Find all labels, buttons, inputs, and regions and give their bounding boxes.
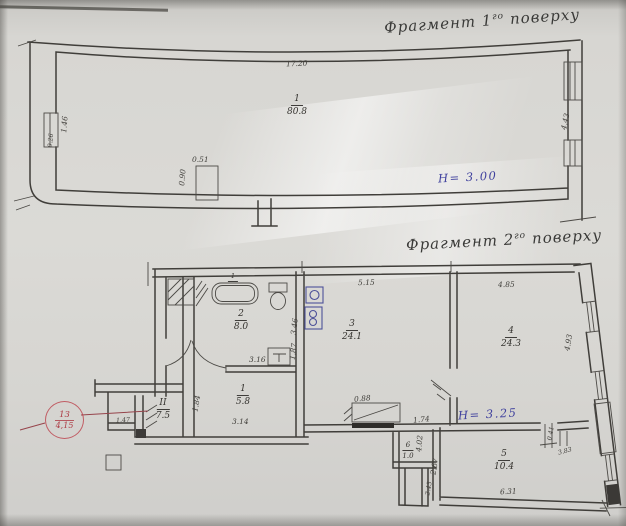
porch-pier [106,455,121,470]
floor2-walls [95,261,626,516]
room-area: 5.8 [236,396,250,407]
dim-porch-width: 1.47 [116,417,130,425]
room-label-bedroom: 4 24.3 [501,326,521,350]
dim-hall-width: 3.14 [232,417,249,426]
dim-floor1-width: 17.20 [286,59,308,69]
bathtub-tag-number: 1 [228,272,238,282]
entry-door-arc [166,340,191,366]
bathtub-tag: 1 [228,272,238,282]
room-area: 24.3 [501,338,521,349]
toilet-icon [269,283,287,310]
floor1-title-ordinal: го [492,11,505,22]
dim-window-left-height: 1.46 [59,116,69,133]
dim-kitchen-width: 6.31 [500,487,517,497]
dim-closet-wall: 4.02 [414,435,424,452]
floor1-walls [14,40,596,226]
room-label-closet: 6 1.0 [402,441,413,460]
room-number: II [156,398,169,410]
gas-meter-icon [305,307,322,329]
room-number: 4 [505,326,517,338]
room-number: 2 [235,309,247,321]
dim-stove-offset: 1.74 [413,414,430,424]
room-label-hall: 1 5.8 [236,384,250,408]
bathtub-icon [212,283,258,304]
room-area: 24.1 [342,331,362,342]
room-number: 1 [237,384,249,396]
wall-pier-filled [136,429,146,438]
inventory-stamp: 13 4,15 [45,401,84,439]
room-area: 10.4 [494,461,514,472]
stamp-value: 4,15 [46,421,83,430]
washstand-icon [268,348,290,365]
room-area: 7.5 [156,410,170,421]
dim-stove-width: 0.88 [354,393,371,403]
stamp-number: 13 [55,410,74,421]
room-number: 1 [291,94,303,106]
room-area: 8.0 [234,321,248,332]
plan-drawing [0,0,626,526]
dim-window-left-depth: 0.26 [47,133,55,148]
dim-column-width: 0.51 [192,155,209,164]
floor2-title-ordinal: го [514,231,526,242]
right-wall-windows [570,262,626,511]
sink-icon [306,287,323,303]
room-area: 1.0 [402,451,413,460]
bathroom-door-arc [192,341,226,372]
scanned-floorplan-photo: Фрагмент 1го поверху Фрагмент 2го поверх… [0,0,626,526]
room-number: 6 [403,441,413,451]
room-number: 3 [346,319,358,331]
room-label-floor1-1: 1 80.8 [287,94,307,118]
dim-column-depth: 0.90 [177,169,187,186]
room-label-stair: II 7.5 [156,398,170,422]
dim-top-left: 5.15 [358,278,375,287]
room-number: 5 [498,449,510,461]
room-label-living: 3 24.1 [342,319,362,343]
room-label-kitchen: 5 10.4 [494,449,514,473]
room-door-leaf [431,380,451,400]
room-label-bathroom: 2 8.0 [234,309,248,333]
room-area: 80.8 [287,106,307,117]
dim-sink-offset: 3.16 [249,355,266,364]
floor2-title-suffix: поверху [532,226,603,248]
dim-top-right: 4.85 [498,280,515,289]
stove-icon [344,403,400,428]
